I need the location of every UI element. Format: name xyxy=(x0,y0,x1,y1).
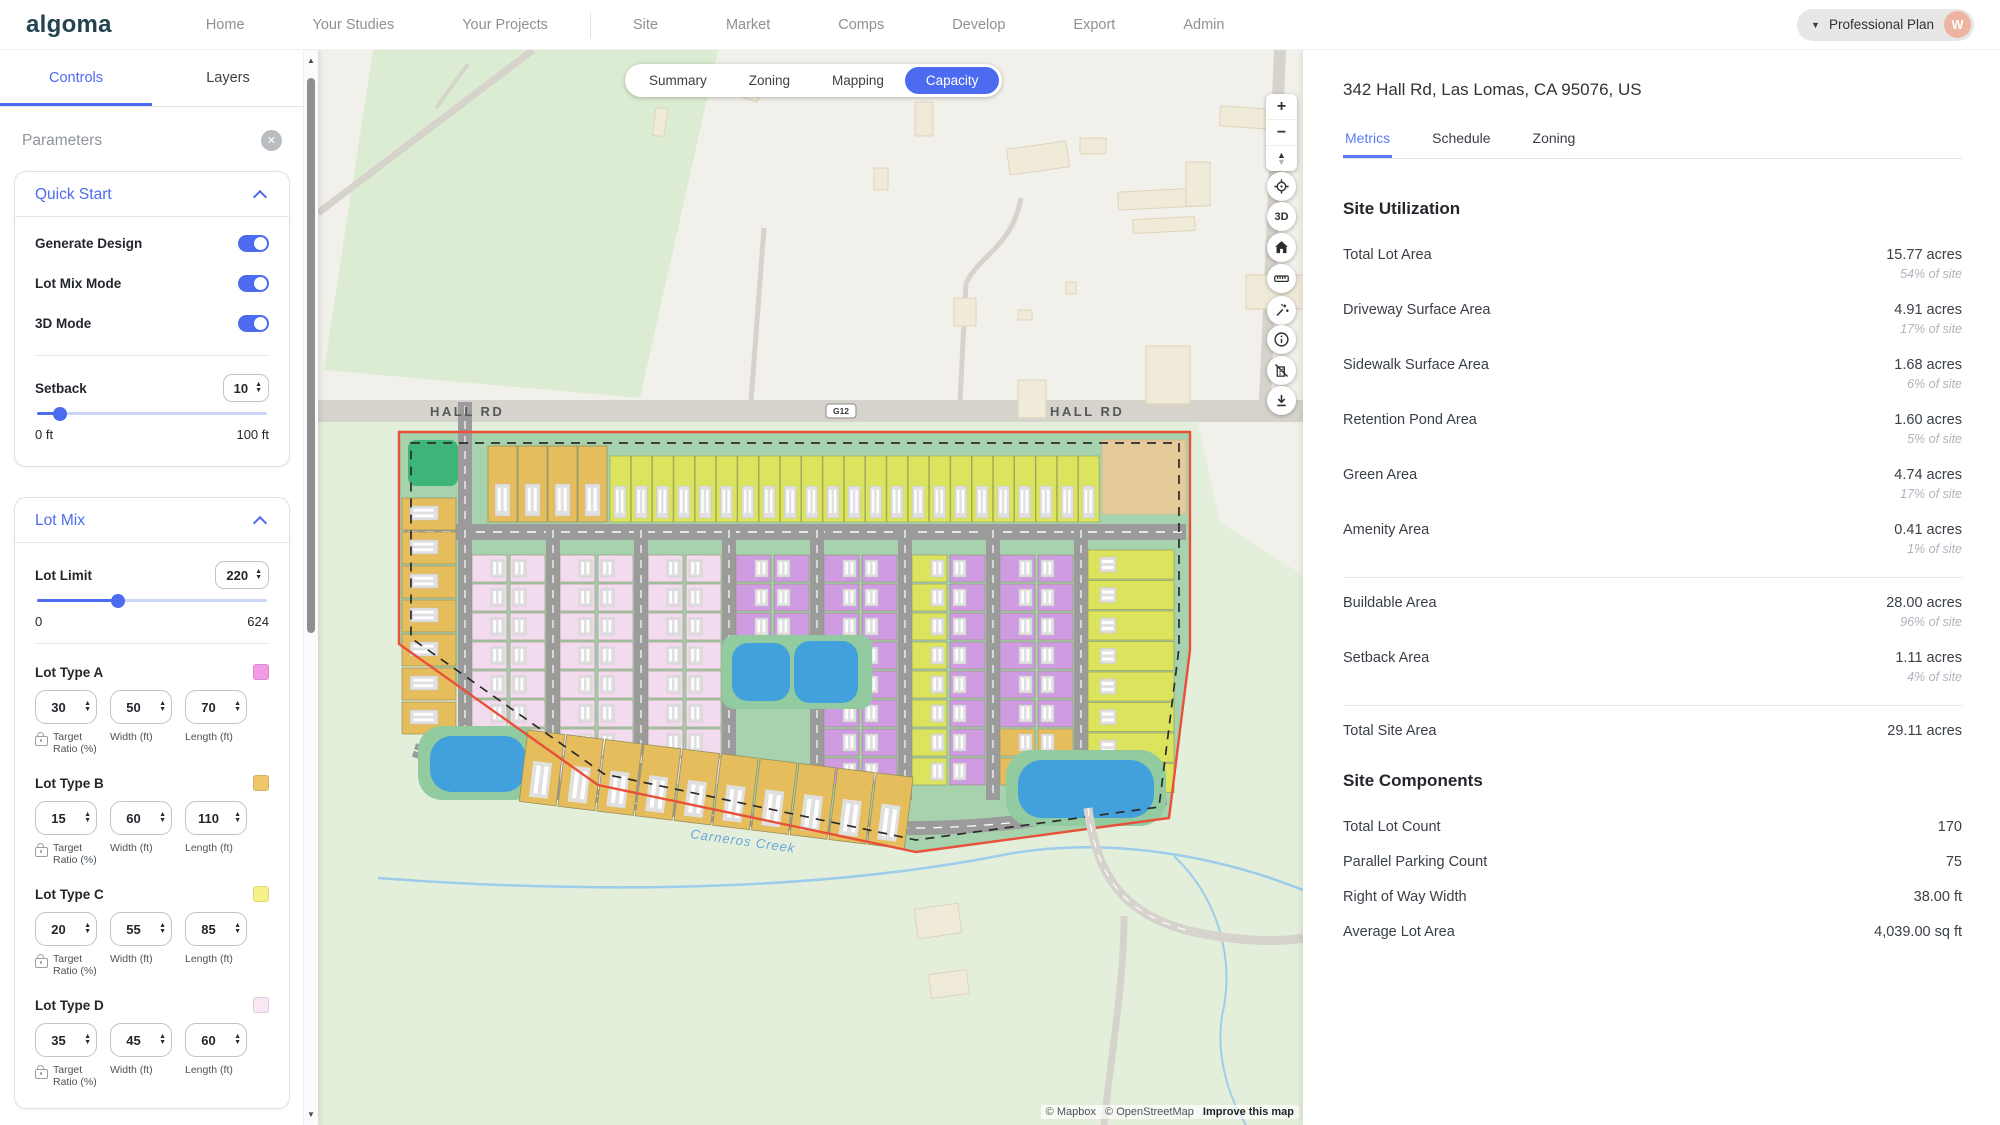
target-ratio-stepper[interactable]: 20▲▼ xyxy=(35,912,97,946)
controls-sidebar: Controls Layers Parameters ✕ Quick Start… xyxy=(0,50,318,1125)
lot-mix-card: Lot Mix Lot Limit 220 ▲▼ 0 624 xyxy=(14,497,290,1109)
setback-max-label: 100 ft xyxy=(236,427,269,442)
divider xyxy=(1343,577,1962,578)
building-slash-icon xyxy=(1273,362,1290,379)
width-stepper[interactable]: 45▲▼ xyxy=(110,1023,172,1057)
metric-row: Setback Area1.11 acres4% of site xyxy=(1343,650,1962,684)
width-stepper[interactable]: 60▲▼ xyxy=(110,801,172,835)
lot-type-name: Lot Type C xyxy=(35,887,104,902)
mapbox-link[interactable]: © Mapbox xyxy=(1046,1106,1096,1118)
toggle-label-generate-design: Generate Design xyxy=(35,236,142,251)
setback-stepper[interactable]: 10 ▲▼ xyxy=(223,374,269,402)
svg-text:G12: G12 xyxy=(833,406,849,416)
setback-min-label: 0 ft xyxy=(35,427,53,442)
lot-mix-header[interactable]: Lot Mix xyxy=(35,512,269,530)
scroll-down-icon[interactable]: ▼ xyxy=(304,1110,318,1119)
divider xyxy=(35,643,269,644)
tab-summary[interactable]: Summary xyxy=(628,67,728,94)
metric-row: Retention Pond Area1.60 acres5% of site xyxy=(1343,412,1962,446)
length-stepper[interactable]: 110▲▼ xyxy=(185,801,247,835)
stepper-down-icon[interactable]: ▼ xyxy=(255,575,262,581)
setback-label: Setback xyxy=(35,381,87,396)
svg-text:HALL RD: HALL RD xyxy=(430,404,504,419)
lot-type-block-b: Lot Type B 15▲▼ 60▲▼ 110▲▼ Target Ratio … xyxy=(35,775,269,866)
lot-type-name: Lot Type B xyxy=(35,776,104,791)
compass-icon: ▲▼ xyxy=(1277,152,1286,166)
metric-row: Amenity Area0.41 acres1% of site xyxy=(1343,522,1962,556)
map-area: G12HALL RDHALL RDSILL RDCarneros Creek S… xyxy=(318,50,1303,1125)
toggle-label-3d-mode: 3D Mode xyxy=(35,316,91,331)
magic-wand-icon xyxy=(1273,302,1290,319)
metric-row: Buildable Area28.00 acres96% of site xyxy=(1343,595,1962,629)
width-stepper[interactable]: 55▲▼ xyxy=(110,912,172,946)
width-stepper[interactable]: 50▲▼ xyxy=(110,690,172,724)
slider-thumb[interactable] xyxy=(53,407,67,421)
download-icon xyxy=(1273,392,1290,409)
nav-item-your-studies[interactable]: Your Studies xyxy=(279,17,429,33)
sidebar-tabbar: Controls Layers xyxy=(0,50,304,107)
tab-schedule[interactable]: Schedule xyxy=(1430,124,1492,158)
plan-selector[interactable]: ▼ Professional Plan W xyxy=(1797,9,1974,41)
lot-limit-stepper[interactable]: 220 ▲▼ xyxy=(215,561,269,589)
lock-icon[interactable] xyxy=(35,1069,48,1079)
chevron-up-icon xyxy=(253,516,267,530)
divider xyxy=(35,355,269,356)
plus-icon: + xyxy=(1277,98,1286,116)
primary-nav: Home Your Studies Your Projects Site Mar… xyxy=(172,12,1259,38)
3d-mode-toggle[interactable] xyxy=(238,315,269,332)
stepper-down-icon[interactable]: ▼ xyxy=(255,388,262,394)
plan-label: Professional Plan xyxy=(1829,17,1934,32)
divider xyxy=(1343,705,1962,706)
osm-link[interactable]: © OpenStreetMap xyxy=(1105,1106,1194,1118)
toggle-label-lot-mix-mode: Lot Mix Mode xyxy=(35,276,121,291)
sidebar-content: Parameters ✕ Quick Start Generate Design… xyxy=(0,106,304,1125)
ruler-icon xyxy=(1273,270,1290,287)
nav-item-your-projects[interactable]: Your Projects xyxy=(428,17,582,33)
tab-zoning[interactable]: Zoning xyxy=(728,67,811,94)
target-ratio-stepper[interactable]: 15▲▼ xyxy=(35,801,97,835)
target-ratio-stepper[interactable]: 35▲▼ xyxy=(35,1023,97,1057)
user-avatar[interactable]: W xyxy=(1944,11,1971,38)
target-ratio-stepper[interactable]: 30▲▼ xyxy=(35,690,97,724)
length-stepper[interactable]: 60▲▼ xyxy=(185,1023,247,1057)
app-logo[interactable]: algoma xyxy=(26,11,112,39)
lot-type-name: Lot Type D xyxy=(35,998,104,1013)
nav-item-comps[interactable]: Comps xyxy=(804,17,918,33)
metric-row: Sidewalk Surface Area1.68 acres6% of sit… xyxy=(1343,357,1962,391)
toggle-buildings-button[interactable] xyxy=(1267,356,1296,385)
lot-type-color-swatch[interactable] xyxy=(253,664,269,680)
lot-type-block-d: Lot Type D 35▲▼ 45▲▼ 60▲▼ Target Ratio (… xyxy=(35,997,269,1088)
scrollbar-thumb[interactable] xyxy=(307,78,315,633)
setback-slider[interactable] xyxy=(37,412,267,415)
scroll-up-icon[interactable]: ▲ xyxy=(304,56,318,65)
tab-controls[interactable]: Controls xyxy=(0,50,152,106)
map-view-tabs: Summary Zoning Mapping Capacity xyxy=(625,64,1002,97)
info-button[interactable] xyxy=(1267,325,1296,354)
nav-item-site[interactable]: Site xyxy=(599,17,692,33)
metric-row: Green Area4.74 acres17% of site xyxy=(1343,467,1962,501)
lot-limit-max-label: 624 xyxy=(247,614,269,629)
lot-limit-label: Lot Limit xyxy=(35,568,92,583)
nav-item-market[interactable]: Market xyxy=(692,17,804,33)
lot-limit-slider[interactable] xyxy=(37,599,267,602)
lot-type-color-swatch[interactable] xyxy=(253,997,269,1013)
metric-row: Right of Way Width38.00 ft xyxy=(1343,889,1962,905)
nav-item-home[interactable]: Home xyxy=(172,17,279,33)
caret-down-icon: ▼ xyxy=(1811,20,1820,30)
lot-mix-mode-toggle[interactable] xyxy=(238,275,269,292)
metric-row: Driveway Surface Area4.91 acres17% of si… xyxy=(1343,302,1962,336)
lock-icon[interactable] xyxy=(35,847,48,857)
details-panel: 342 Hall Rd, Las Lomas, CA 95076, US Met… xyxy=(1303,50,2000,1125)
field-label-ratio: Target Ratio (%) xyxy=(53,731,97,755)
generate-design-toggle[interactable] xyxy=(238,235,269,252)
top-nav: algoma Home Your Studies Your Projects S… xyxy=(0,0,2000,50)
nav-divider xyxy=(590,12,591,38)
field-label-length: Length (ft) xyxy=(185,731,233,743)
lot-limit-min-label: 0 xyxy=(35,614,42,629)
svg-text:HALL RD: HALL RD xyxy=(1050,404,1124,419)
tab-mapping[interactable]: Mapping xyxy=(811,67,905,94)
divider xyxy=(15,216,289,217)
map-zoom-controls: + − ▲▼ xyxy=(1266,94,1297,171)
metric-row: Parallel Parking Count75 xyxy=(1343,854,1962,870)
compass-button[interactable]: ▲▼ xyxy=(1266,145,1297,171)
metric-row: Total Lot Count170 xyxy=(1343,819,1962,835)
close-icon[interactable]: ✕ xyxy=(261,130,282,151)
zoom-out-button[interactable]: − xyxy=(1266,119,1297,145)
lock-icon[interactable] xyxy=(35,958,48,968)
home-icon xyxy=(1273,239,1290,256)
quick-start-header[interactable]: Quick Start xyxy=(35,186,269,204)
zoom-in-button[interactable]: + xyxy=(1266,94,1297,119)
section-title-site-components: Site Components xyxy=(1343,771,1962,791)
length-stepper[interactable]: 85▲▼ xyxy=(185,912,247,946)
nav-item-develop[interactable]: Develop xyxy=(918,17,1039,33)
site-address: 342 Hall Rd, Las Lomas, CA 95076, US xyxy=(1343,80,1962,100)
improve-map-link[interactable]: Improve this map xyxy=(1203,1106,1294,1118)
slider-thumb[interactable] xyxy=(111,594,125,608)
sidebar-scrollbar[interactable]: ▲ ▼ xyxy=(303,50,318,1125)
tab-zoning[interactable]: Zoning xyxy=(1531,124,1578,158)
map-canvas[interactable]: G12HALL RDHALL RDSILL RDCarneros Creek xyxy=(318,50,1303,1125)
section-title-site-utilization: Site Utilization xyxy=(1343,199,1962,219)
divider xyxy=(15,542,289,543)
locate-icon xyxy=(1273,178,1290,195)
metric-row: Average Lot Area4,039.00 sq ft xyxy=(1343,924,1962,940)
details-tabbar: Metrics Schedule Zoning xyxy=(1343,124,1962,159)
minus-icon: − xyxy=(1277,124,1286,142)
download-button[interactable] xyxy=(1267,386,1296,415)
lock-icon[interactable] xyxy=(35,736,48,746)
info-icon xyxy=(1273,331,1290,348)
nav-item-export[interactable]: Export xyxy=(1039,17,1149,33)
length-stepper[interactable]: 70▲▼ xyxy=(185,690,247,724)
tab-capacity[interactable]: Capacity xyxy=(905,67,1000,94)
lot-type-block-a: Lot Type A 30▲▼ 50▲▼ 70▲▼ Target Ratio (… xyxy=(35,664,269,755)
map-attribution: © Mapbox © OpenStreetMap Improve this ma… xyxy=(1041,1105,1299,1119)
tab-layers[interactable]: Layers xyxy=(152,50,304,106)
quick-start-card: Quick Start Generate Design Lot Mix Mode… xyxy=(14,171,290,467)
measure-button[interactable] xyxy=(1267,264,1296,293)
3d-view-button[interactable]: 3D xyxy=(1267,202,1296,231)
auto-design-button[interactable] xyxy=(1267,296,1296,325)
lot-type-color-swatch[interactable] xyxy=(253,775,269,791)
metric-row: Total Lot Area15.77 acres54% of site xyxy=(1343,247,1962,281)
field-label-width: Width (ft) xyxy=(110,731,153,743)
lot-type-color-swatch[interactable] xyxy=(253,886,269,902)
nav-item-admin[interactable]: Admin xyxy=(1149,17,1258,33)
tab-metrics[interactable]: Metrics xyxy=(1343,124,1392,158)
lot-type-block-c: Lot Type C 20▲▼ 55▲▼ 85▲▼ Target Ratio (… xyxy=(35,886,269,977)
locate-button[interactable] xyxy=(1267,172,1296,201)
chevron-up-icon xyxy=(253,190,267,204)
metric-row: Total Site Area29.11 acres xyxy=(1343,723,1962,739)
panel-title: Parameters xyxy=(22,132,102,150)
lot-type-name: Lot Type A xyxy=(35,665,103,680)
3d-icon: 3D xyxy=(1274,211,1288,223)
home-view-button[interactable] xyxy=(1267,233,1296,262)
